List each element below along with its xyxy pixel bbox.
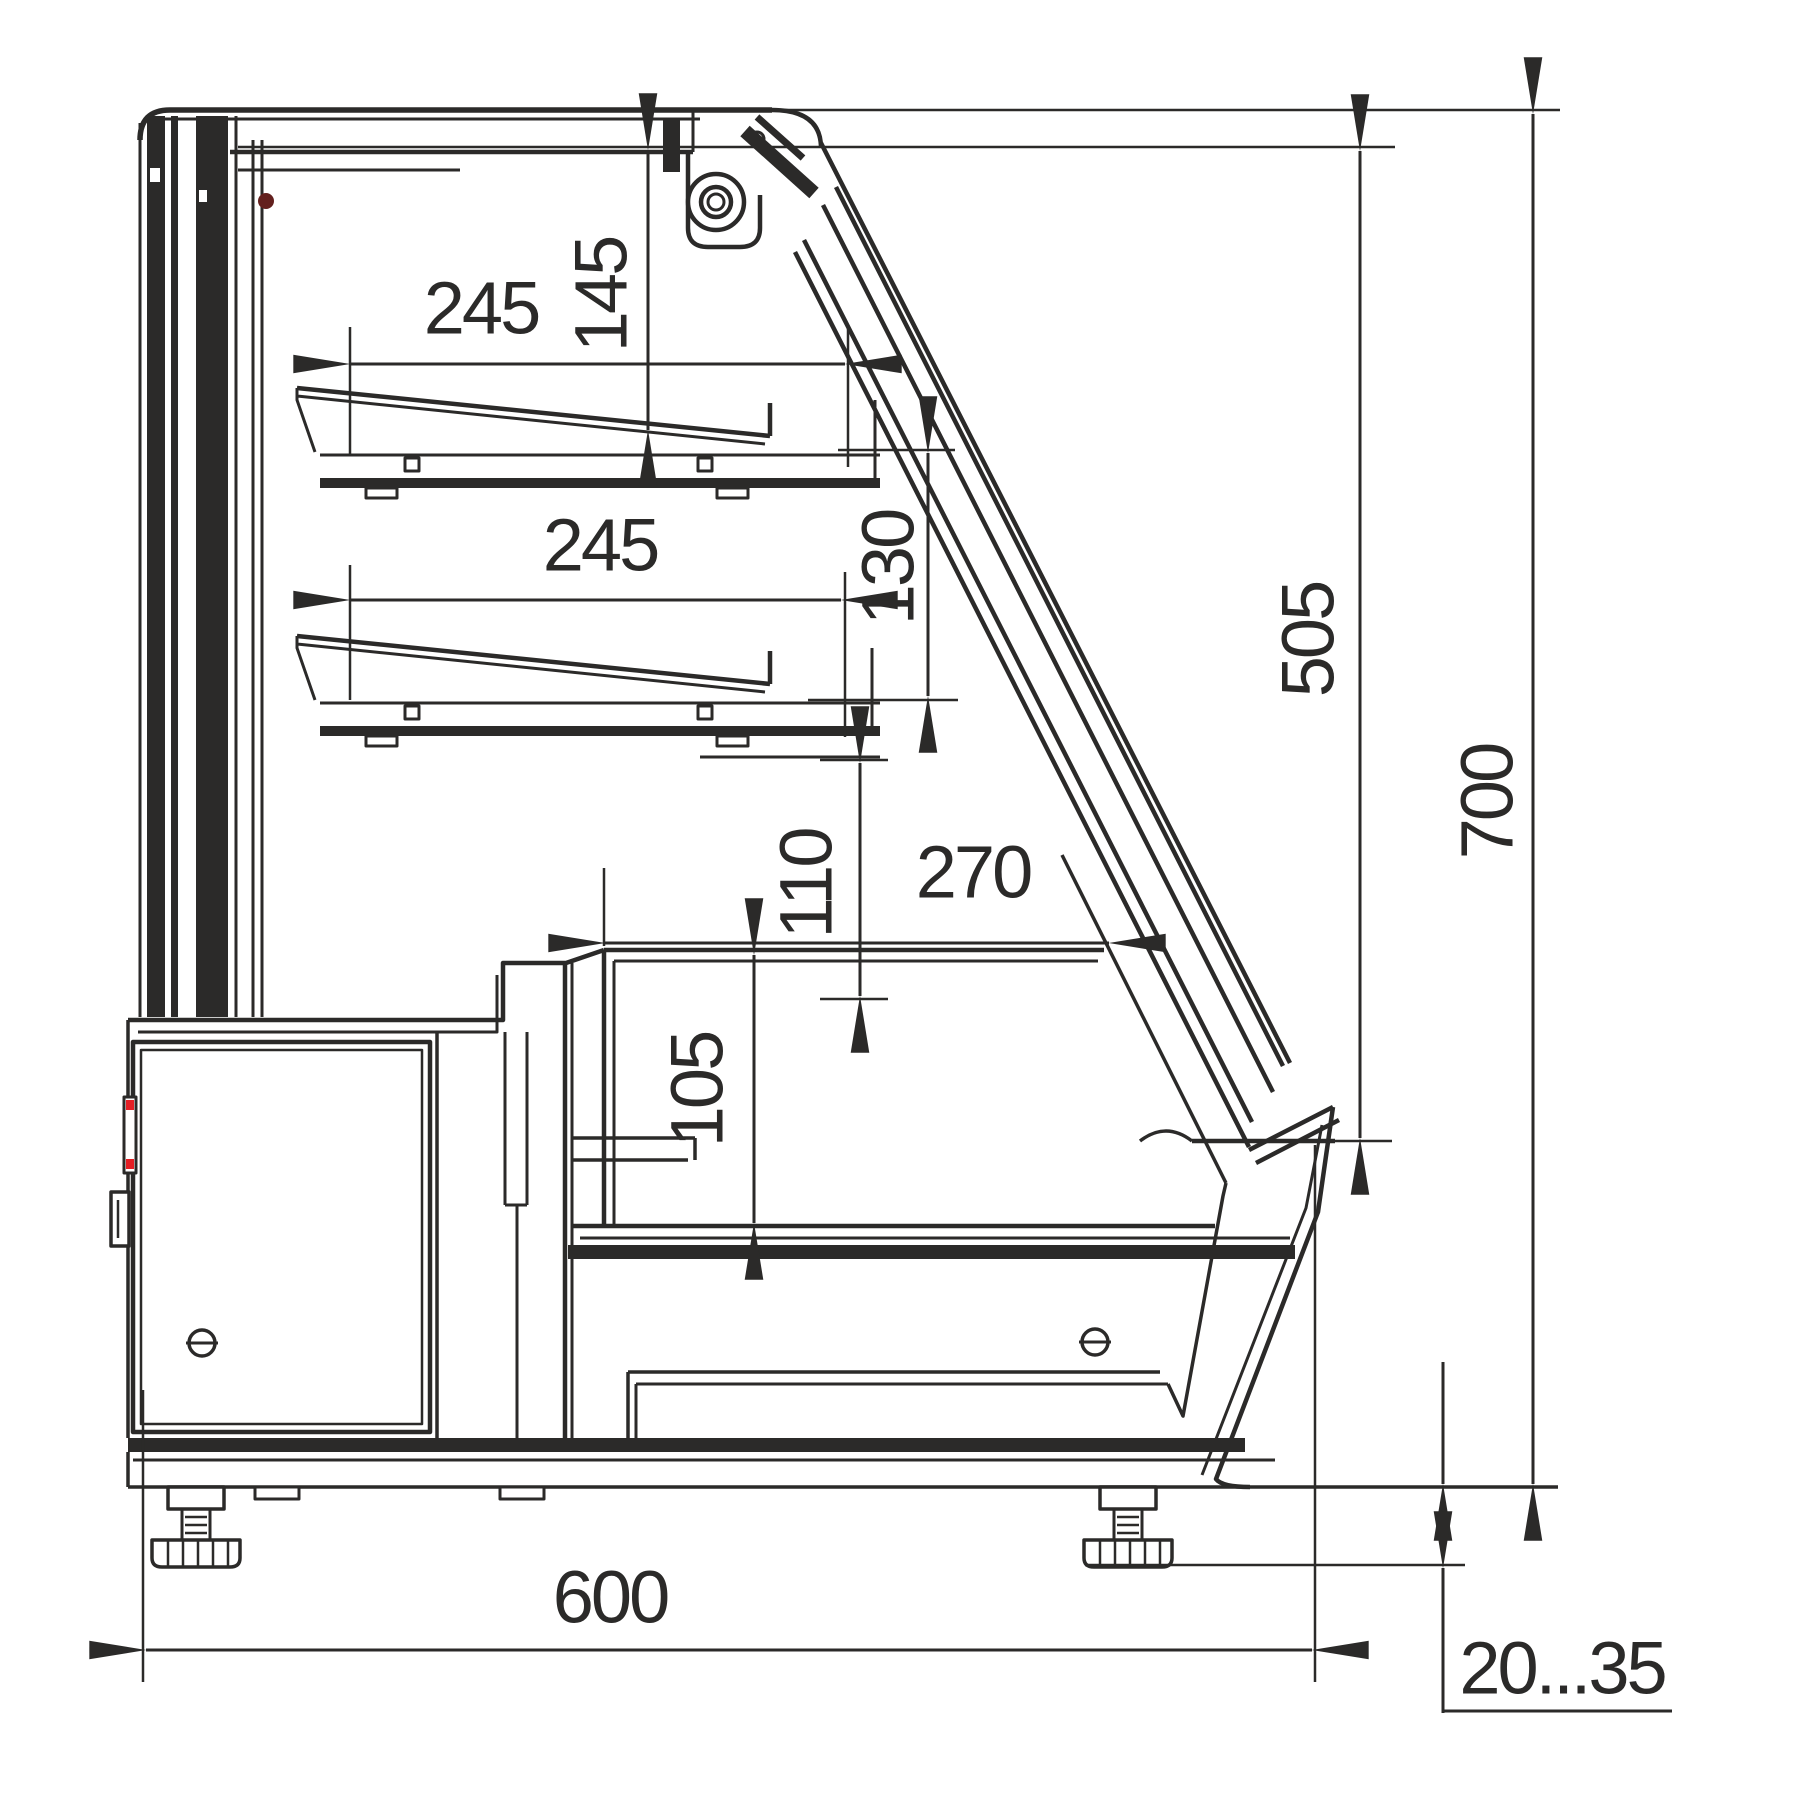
switch-indicator-bottom: [126, 1159, 134, 1169]
counter-section-drawing: 245 145 245 130 110 270 105 505 700: [0, 0, 1800, 1813]
counter-step-inner: [138, 975, 497, 1032]
dim-well-clearance: 110: [765, 760, 889, 999]
glass-top-cap: [772, 110, 821, 148]
base-band: [128, 1438, 1245, 1452]
front-inner-wall: [1168, 1183, 1226, 1416]
canopy: [140, 110, 1560, 172]
dim-front-glass-height-label: 505: [1267, 582, 1350, 697]
back-panel-pin: [258, 193, 274, 209]
base-tabs: [255, 1487, 544, 1499]
dim-overall-depth-label: 600: [553, 1556, 668, 1639]
front-panel: [1140, 1107, 1335, 1487]
machine-compartment: [111, 1020, 437, 1438]
dim-well-width-label: 270: [916, 831, 1031, 914]
divider-wall-inner: [505, 963, 572, 1438]
door-handle: [111, 1192, 129, 1246]
shelf-lower: [297, 636, 880, 757]
cold-well: [128, 950, 1295, 1438]
back-panel: [140, 116, 274, 1017]
shelf-lower-underside: [297, 636, 765, 700]
compartment-walls: [128, 1020, 437, 1438]
base-and-feet: [128, 1438, 1558, 1567]
dim-overall-height: 700: [1446, 114, 1534, 1484]
storage-floor-inner: [636, 1384, 1168, 1438]
dim-overall-height-label: 700: [1446, 744, 1529, 859]
foot-left-nut: [168, 1487, 224, 1509]
shelf-upper-surface: [297, 388, 770, 436]
adjustable-foot-left: [152, 1487, 240, 1567]
base-outline: [128, 1452, 1558, 1487]
dim-shelf-upper-depth-label: 245: [424, 267, 539, 350]
dim-well-depth: 105: [656, 955, 755, 1223]
dim-shelf-lower-depth-label: 245: [543, 504, 658, 587]
dim-well-clearance-label: 110: [765, 829, 848, 939]
front-panel-inner: [1202, 1125, 1322, 1475]
foot-left-thread: [185, 1517, 207, 1533]
foot-right-nut: [1100, 1487, 1156, 1509]
lower-storage: [628, 1329, 1168, 1438]
canopy-end-block: [663, 118, 680, 172]
dim-foot-adjust-range: 20...35: [1085, 1362, 1672, 1713]
glass-hinge: [745, 110, 821, 193]
storage-floor: [628, 1372, 1160, 1438]
shelf-upper-arm: [320, 400, 880, 487]
switch-indicator-top: [126, 1100, 134, 1110]
foot-right-thread: [1117, 1517, 1139, 1533]
canopy-detail-lines: [148, 111, 700, 170]
dim-shelf-lower-clearance-label: 130: [847, 510, 930, 625]
glass-pane-lines: [795, 143, 1290, 1147]
dim-well-depth-label: 105: [656, 1032, 739, 1147]
dim-well-width: 270: [604, 831, 1109, 947]
lamp: [688, 132, 764, 247]
dim-shelf-upper-clearance-label: 145: [560, 237, 643, 352]
dim-shelf-upper-clearance: 145: [560, 150, 649, 430]
back-panel-bars: [147, 116, 228, 1017]
adjustable-foot-right: [1084, 1487, 1172, 1567]
dim-front-glass-height: 505: [1267, 151, 1393, 1141]
shelf-upper-underside: [297, 388, 765, 452]
drawing-canvas: 245 145 245 130 110 270 105 505 700: [0, 0, 1800, 1813]
compartment-door-inner: [141, 1050, 422, 1424]
shelf-lower-arm: [320, 648, 880, 735]
compartment-door: [133, 1042, 430, 1432]
lamp-outer-circle: [688, 174, 744, 230]
dim-foot-adjust-range-label: 20...35: [1459, 1627, 1665, 1710]
counter-bumper: [1140, 1131, 1192, 1141]
shelf-upper: [297, 388, 880, 498]
front-glass: [795, 143, 1339, 1183]
shelf-lower-surface: [297, 636, 770, 684]
